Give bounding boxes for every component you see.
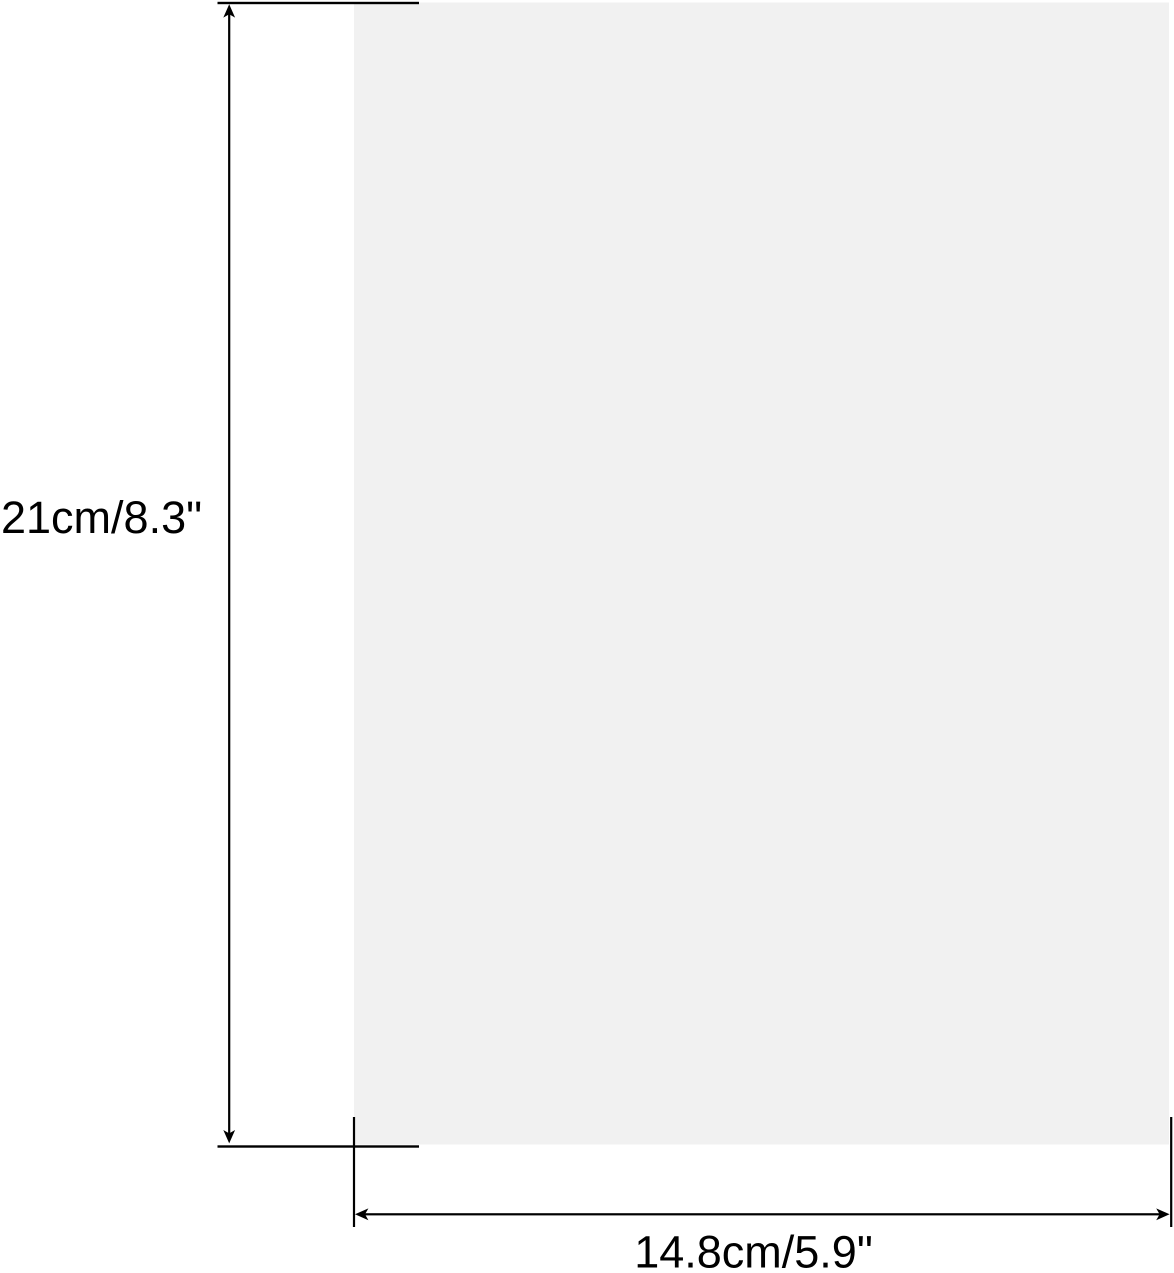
svg-text:14.8cm/5.9": 14.8cm/5.9" bbox=[634, 1227, 873, 1273]
svg-text:21cm/8.3": 21cm/8.3" bbox=[1, 492, 202, 543]
